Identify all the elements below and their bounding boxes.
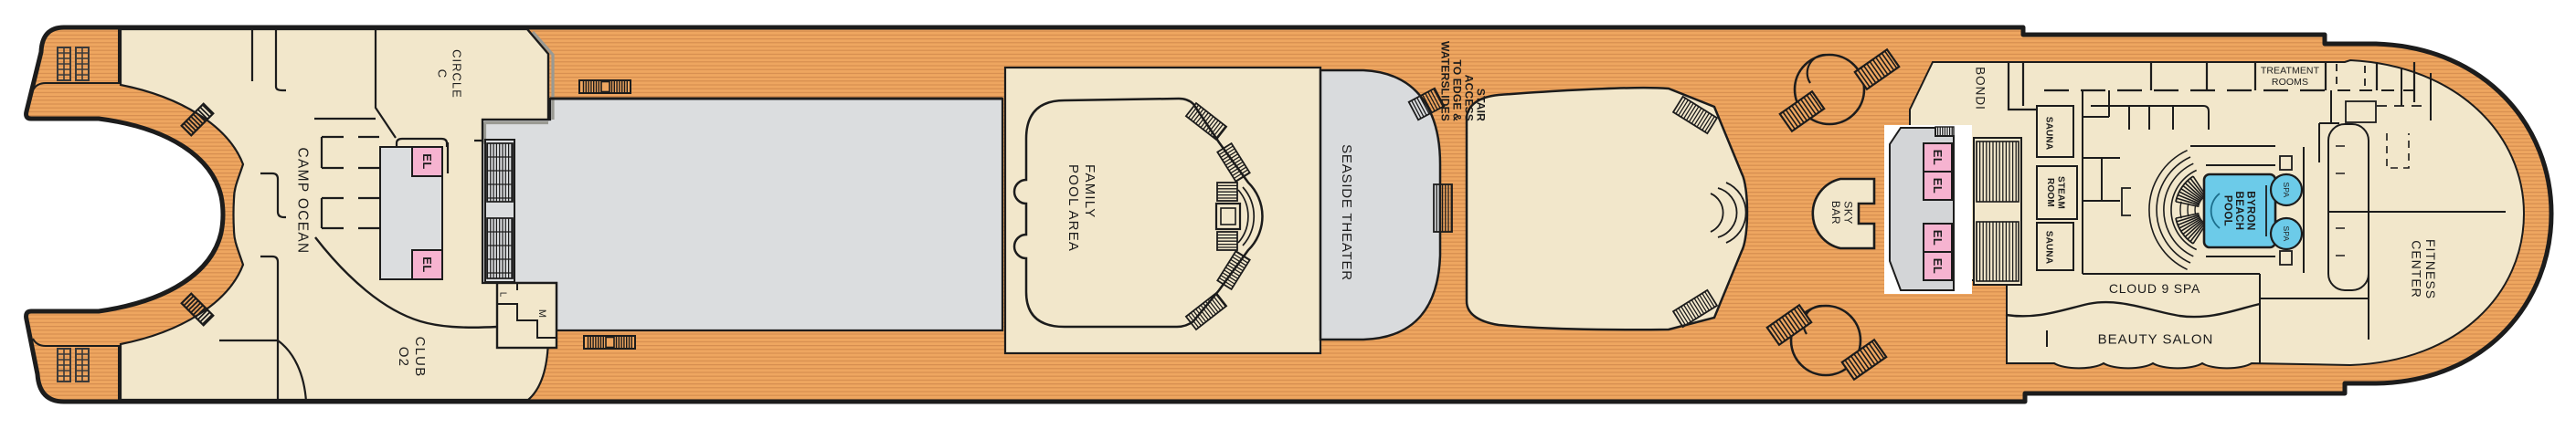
svg-text:SAUNA: SAUNA (2044, 231, 2054, 265)
svg-text:EL: EL (420, 256, 434, 273)
svg-text:M: M (536, 309, 547, 319)
svg-text:FITNESSCENTER: FITNESSCENTER (2409, 239, 2438, 299)
svg-text:SAUNA: SAUNA (2044, 117, 2054, 151)
svg-text:STEAMROOM: STEAMROOM (2045, 176, 2066, 209)
svg-text:EL: EL (1931, 230, 1945, 246)
svg-text:EL: EL (1931, 178, 1945, 194)
svg-text:SKYBAR: SKYBAR (1829, 201, 1855, 225)
svg-text:BYRONBEACHPOOL: BYRONBEACHPOOL (2221, 191, 2255, 231)
svg-text:BONDI: BONDI (1973, 67, 1987, 110)
svg-text:SEASIDE THEATER: SEASIDE THEATER (1339, 144, 1354, 281)
svg-text:L: L (498, 292, 508, 298)
svg-text:CAMP OCEAN: CAMP OCEAN (295, 148, 311, 255)
svg-text:EL: EL (1931, 150, 1945, 166)
svg-text:CLOUD 9 SPA: CLOUD 9 SPA (2109, 281, 2200, 296)
svg-text:SPA: SPA (2282, 183, 2291, 198)
svg-text:EL: EL (420, 153, 434, 170)
svg-text:EL: EL (1931, 258, 1945, 275)
svg-text:SPA: SPA (2282, 226, 2291, 242)
svg-text:BEAUTY SALON: BEAUTY SALON (2098, 331, 2214, 347)
